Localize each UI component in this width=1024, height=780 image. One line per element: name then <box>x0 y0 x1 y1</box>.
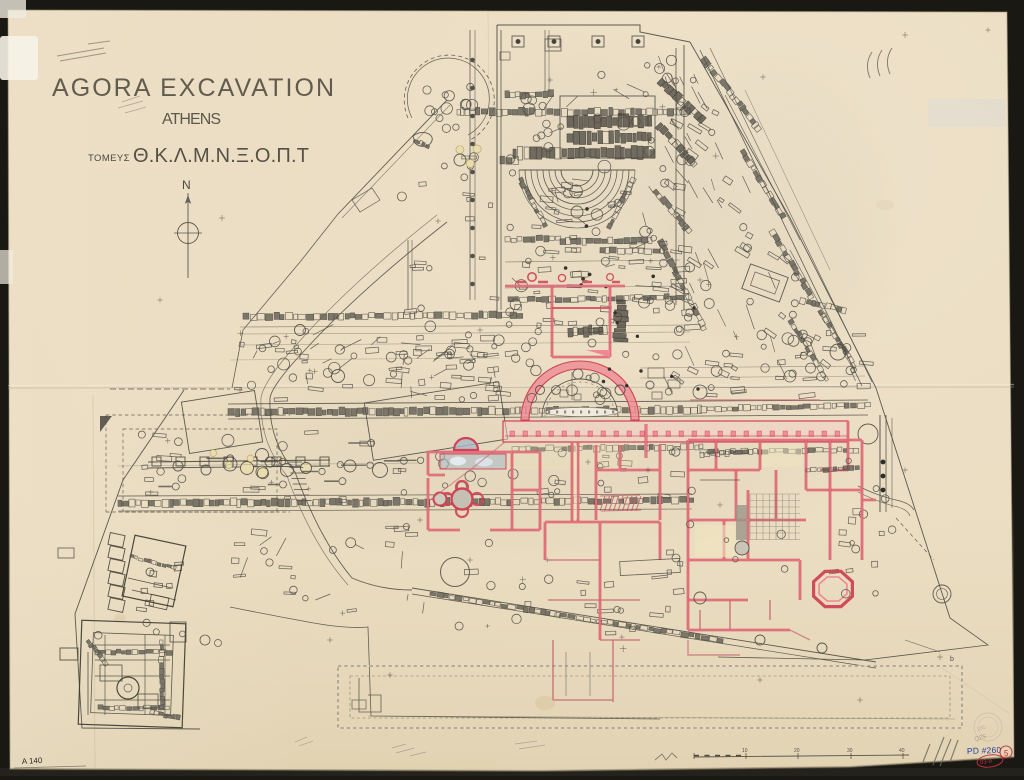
svg-text:10: 10 <box>742 748 748 754</box>
svg-text:40: 40 <box>899 748 905 754</box>
svg-text:Θ.Κ.Λ.Μ.Ν.Ξ.Ο.Π.Τ: Θ.Κ.Λ.Μ.Ν.Ξ.Ο.Π.Τ <box>133 145 311 167</box>
svg-text:PD #260: PD #260 <box>967 745 1002 756</box>
svg-text:b: b <box>950 656 954 663</box>
svg-text:ATHENS: ATHENS <box>162 111 224 128</box>
svg-text:N: N <box>182 178 191 192</box>
svg-text:5: 5 <box>1004 749 1009 758</box>
svg-text:30: 30 <box>847 748 853 754</box>
svg-text:ΤΟΜΕΥΣ: ΤΟΜΕΥΣ <box>88 153 130 164</box>
svg-text:AGORA EXCAVATION: AGORA EXCAVATION <box>52 74 337 102</box>
svg-text:A 140: A 140 <box>22 756 43 766</box>
svg-text:20: 20 <box>794 748 800 754</box>
